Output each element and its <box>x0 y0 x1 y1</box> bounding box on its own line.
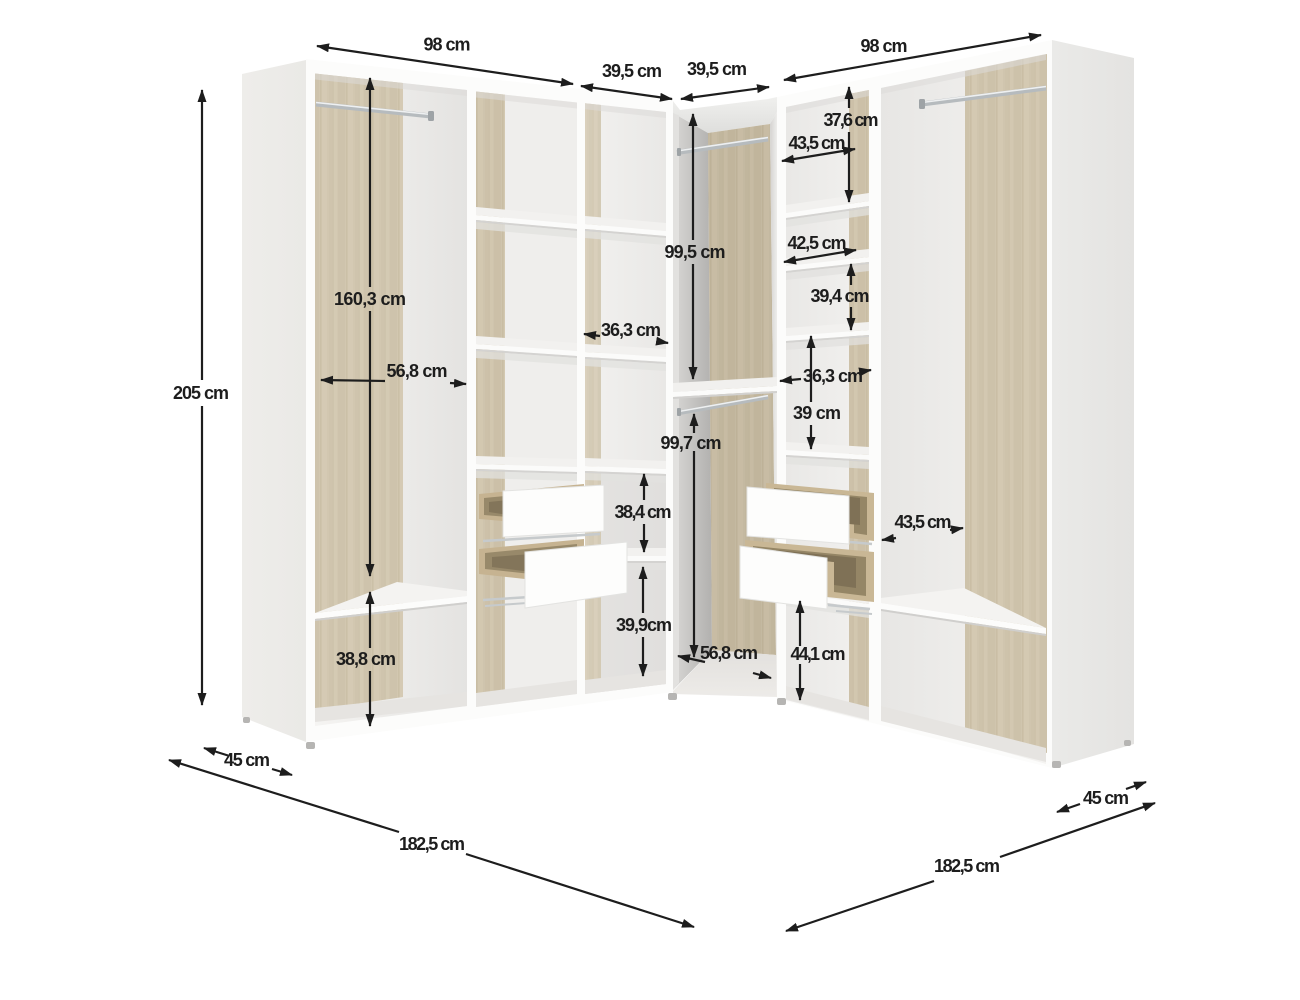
svg-text:39,4 cm: 39,4 cm <box>811 286 870 306</box>
svg-text:98 cm: 98 cm <box>861 36 908 56</box>
svg-text:36,3 cm: 36,3 cm <box>601 320 661 340</box>
svg-text:99,5 cm: 99,5 cm <box>665 242 726 262</box>
svg-text:39,5 cm: 39,5 cm <box>602 61 662 81</box>
svg-text:44,1 cm: 44,1 cm <box>791 644 846 664</box>
svg-text:39,5 cm: 39,5 cm <box>687 59 747 79</box>
svg-text:56,8 cm: 56,8 cm <box>387 361 448 381</box>
svg-text:160,3 cm: 160,3 cm <box>334 289 406 309</box>
svg-text:43,5 cm: 43,5 cm <box>895 512 952 532</box>
svg-text:42,5 cm: 42,5 cm <box>788 233 847 253</box>
svg-text:45 cm: 45 cm <box>1083 788 1129 808</box>
svg-text:38,4 cm: 38,4 cm <box>615 502 672 522</box>
svg-text:43,5 cm: 43,5 cm <box>789 133 846 153</box>
svg-text:39,9cm: 39,9cm <box>616 615 672 635</box>
svg-text:38,8 cm: 38,8 cm <box>336 649 396 669</box>
svg-text:182,5 cm: 182,5 cm <box>934 856 1000 876</box>
svg-text:182,5 cm: 182,5 cm <box>399 834 465 854</box>
svg-text:56,8 cm: 56,8 cm <box>700 643 758 663</box>
svg-text:98 cm: 98 cm <box>424 35 471 55</box>
svg-text:205 cm: 205 cm <box>173 383 229 403</box>
svg-text:37,6 cm: 37,6 cm <box>824 110 879 130</box>
svg-text:45 cm: 45 cm <box>224 750 270 770</box>
svg-text:39 cm: 39 cm <box>793 403 841 423</box>
svg-text:36,3 cm: 36,3 cm <box>803 366 863 386</box>
svg-text:99,7 cm: 99,7 cm <box>661 433 722 453</box>
